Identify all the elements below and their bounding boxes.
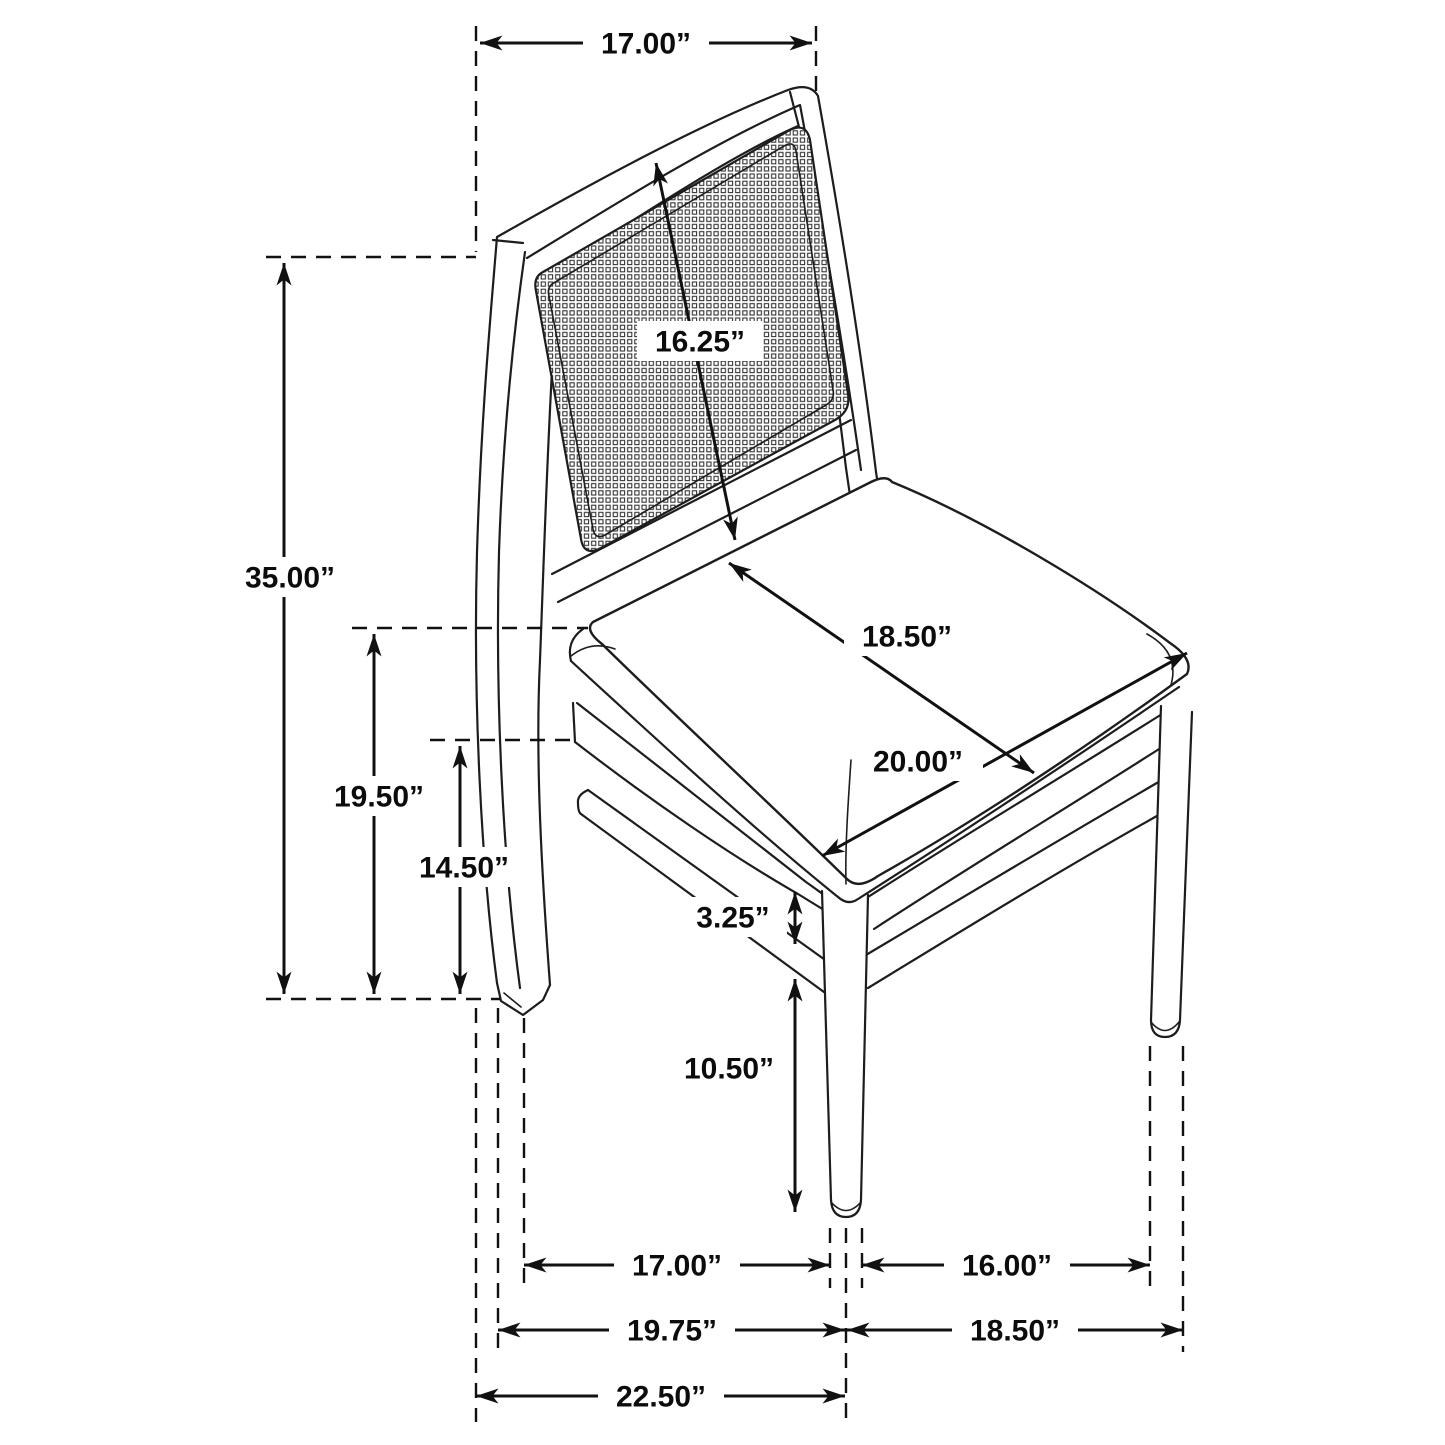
dimension-diagram-page: 17.00” 35.00” 16.25” 19.50” 14.50” [0, 0, 1445, 1445]
dimension-label: 14.50” [419, 852, 509, 885]
dim-leg-span-side-center: 19.75” [498, 1310, 845, 1350]
front-left-leg [822, 891, 868, 1217]
chair-dimension-drawing: 17.00” 35.00” 16.25” 19.50” 14.50” [0, 0, 1445, 1445]
left-apron-end-edge [573, 703, 575, 742]
chair-drawing [476, 87, 1192, 1217]
dim-leg-span-front-outer: 18.50” [847, 1310, 1183, 1350]
dimension-label: 20.00” [873, 746, 963, 779]
dim-overall-height: 35.00” [226, 263, 354, 994]
dimension-label: 22.50” [616, 1381, 706, 1414]
dim-leg-span-front-inner: 16.00” [862, 1245, 1150, 1285]
dimension-label: 3.25” [696, 902, 769, 935]
dimension-label: 16.00” [962, 1250, 1052, 1283]
front-right-leg-outline [1151, 706, 1192, 1037]
extension-lines-left [266, 257, 588, 999]
dimension-label: 10.50” [684, 1053, 774, 1086]
seat-cushion [570, 478, 1189, 902]
dimension-label: 16.25” [655, 326, 745, 359]
dimension-label: 17.00” [632, 1250, 722, 1283]
dimension-label: 35.00” [245, 562, 335, 595]
left-stretcher-end-cap [578, 790, 588, 814]
front-right-leg [1151, 706, 1192, 1037]
dim-overall-depth: 22.50” [476, 1376, 845, 1416]
front-left-leg-outline [822, 891, 868, 1217]
dimension-label: 18.50” [862, 621, 952, 654]
dimension-label: 18.50” [970, 1315, 1060, 1348]
dimension-label: 17.00” [601, 28, 691, 61]
extension-lines-bottom-right [1150, 1046, 1183, 1352]
dim-leg-span-side-inner: 17.00” [524, 1245, 830, 1285]
dimension-label: 19.50” [334, 781, 424, 814]
extension-lines-bottom-center [830, 1228, 862, 1420]
dim-back-top-width: 17.00” [480, 23, 812, 63]
dim-stretcher-to-floor: 10.50” [666, 979, 795, 1212]
rear-left-foot [497, 983, 550, 1015]
extension-lines-bottom-left [476, 1008, 524, 1422]
dim-apron-stretcher-gap: 3.25” [679, 892, 795, 944]
dimension-label: 19.75” [627, 1315, 717, 1348]
dim-floor-to-seat-top: 19.50” [315, 634, 443, 994]
